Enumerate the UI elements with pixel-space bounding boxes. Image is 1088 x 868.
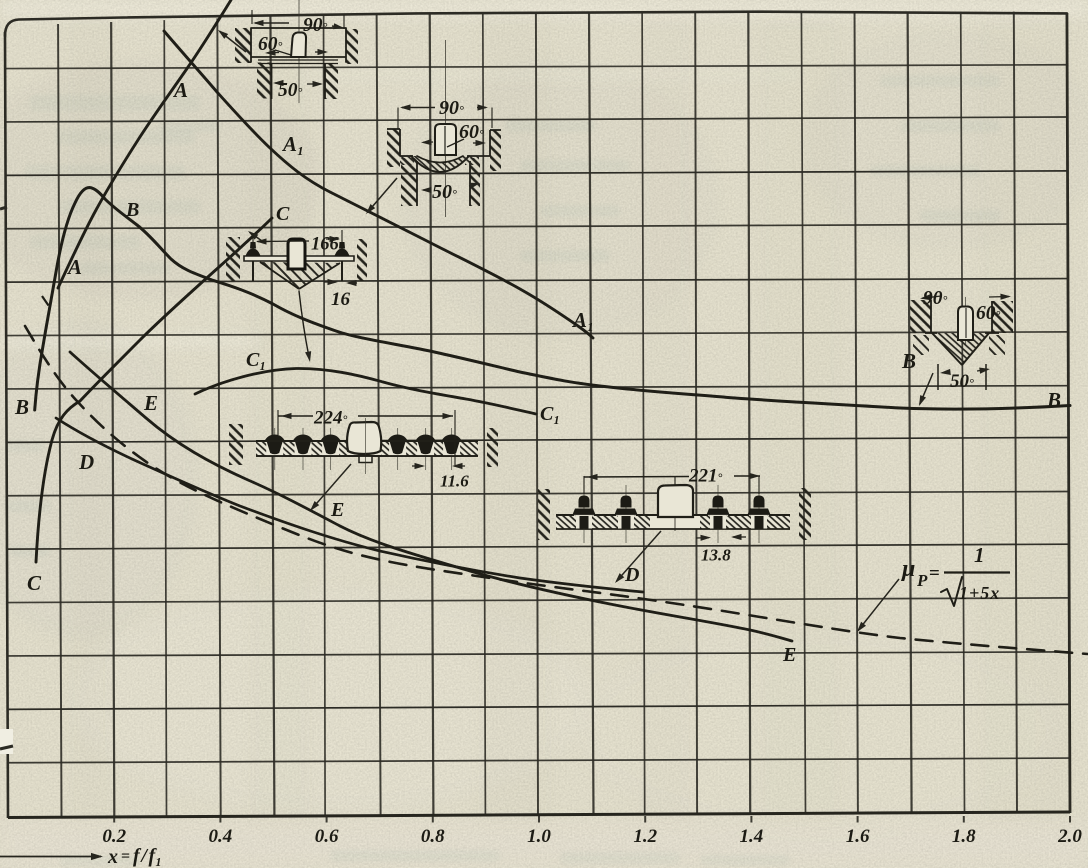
svg-text:C₁: C₁ bbox=[540, 403, 560, 425]
svg-text:11.6: 11.6 bbox=[440, 472, 469, 491]
svg-text:C₁: C₁ bbox=[246, 349, 266, 371]
svg-text:224°: 224° bbox=[313, 408, 348, 429]
svg-text:2.0: 2.0 bbox=[1057, 826, 1082, 847]
svg-text:C: C bbox=[276, 203, 290, 225]
svg-text:13.8: 13.8 bbox=[701, 546, 731, 565]
svg-text:1: 1 bbox=[974, 543, 985, 567]
svg-text:1.0: 1.0 bbox=[527, 826, 551, 847]
svg-text:A: A bbox=[66, 255, 82, 279]
svg-text:B: B bbox=[1046, 388, 1061, 412]
svg-text:C: C bbox=[27, 571, 42, 595]
svg-text:E: E bbox=[143, 391, 158, 415]
svg-text:0.4: 0.4 bbox=[209, 826, 233, 847]
svg-text:B: B bbox=[125, 199, 139, 221]
svg-text:D: D bbox=[624, 564, 639, 586]
svg-text:0.2: 0.2 bbox=[102, 826, 126, 847]
svg-text:B: B bbox=[14, 395, 29, 419]
svg-text:E: E bbox=[782, 644, 796, 666]
svg-text:A₁: A₁ bbox=[281, 132, 304, 156]
svg-text:1.4: 1.4 bbox=[740, 826, 764, 847]
svg-text:1.8: 1.8 bbox=[952, 826, 976, 847]
svg-text:221°: 221° bbox=[688, 466, 723, 487]
svg-text:A: A bbox=[172, 78, 188, 102]
svg-text:μ: μ bbox=[900, 556, 915, 582]
svg-text:16: 16 bbox=[331, 289, 351, 310]
svg-text:0.8: 0.8 bbox=[421, 826, 445, 847]
svg-text:1.6: 1.6 bbox=[846, 826, 870, 847]
svg-text:x: x bbox=[107, 846, 118, 868]
svg-text:1.2: 1.2 bbox=[633, 826, 657, 847]
svg-text:E: E bbox=[330, 499, 344, 521]
svg-text:A₁: A₁ bbox=[571, 308, 594, 332]
svg-text:f / f₁: f / f₁ bbox=[133, 845, 162, 867]
svg-text:=: = bbox=[121, 848, 130, 865]
svg-text:=: = bbox=[929, 563, 940, 584]
svg-text:0.6: 0.6 bbox=[315, 826, 339, 847]
svg-text:D: D bbox=[78, 450, 94, 474]
svg-text:1+5x: 1+5x bbox=[959, 583, 1000, 603]
svg-text:P: P bbox=[916, 571, 928, 590]
